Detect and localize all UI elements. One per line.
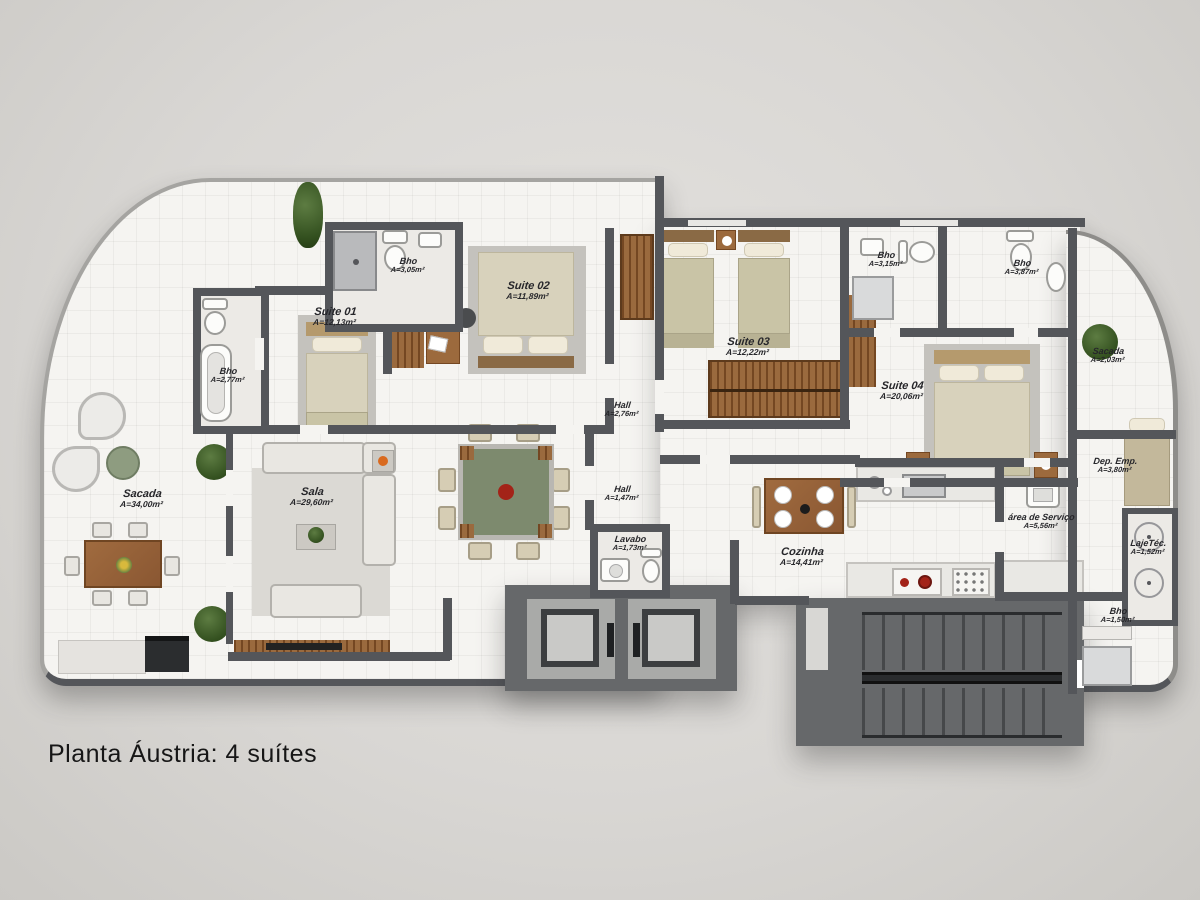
pillow <box>984 365 1024 381</box>
stairwell-block <box>796 598 1084 746</box>
room-area: A=14,41m² <box>751 558 852 568</box>
plant <box>308 527 324 543</box>
main-dining-table <box>458 444 554 540</box>
pillow <box>312 337 362 352</box>
suite03-wardrobe-left <box>620 234 654 320</box>
blanket <box>662 258 714 334</box>
room-area: A=1,73m² <box>593 544 666 552</box>
room-label-lavabo: Lavabo A=1,73m² <box>593 534 667 552</box>
toilet-bowl <box>204 311 226 335</box>
door-opening <box>874 328 900 337</box>
pillow <box>744 243 784 257</box>
blanket-fold <box>306 412 368 426</box>
plan-title: Planta Áustria: 4 suítes <box>48 740 468 769</box>
plate <box>816 486 834 504</box>
room-label-laje-tec: LajeTéc. A=1,52m² <box>1117 538 1179 556</box>
room-label-suite03: Suite 03 A=12,22m² <box>697 336 799 358</box>
room-area: A=12,13m² <box>284 318 385 328</box>
room-label-sacada-left: Sacada A=34,00m² <box>91 488 193 510</box>
table-centerpiece <box>498 484 514 500</box>
room-area: A=1,50m² <box>1081 616 1154 624</box>
wall <box>995 592 1080 601</box>
suite03-bed <box>738 230 790 348</box>
pillow <box>939 365 979 381</box>
table-corner <box>538 446 552 460</box>
wall <box>605 228 614 364</box>
lamp <box>722 236 732 246</box>
room-area: A=11,89m² <box>477 292 578 302</box>
tv <box>266 643 342 650</box>
shower <box>852 276 894 320</box>
plate <box>816 510 834 528</box>
kitchen-table <box>764 478 844 534</box>
suite03-bed <box>662 230 714 348</box>
bathroom-scale <box>418 232 442 248</box>
elevator-shaft <box>628 599 716 679</box>
kitchen-bench <box>752 486 761 528</box>
floor-plan-image: Sacada A=34,00m² Bho A=2,77m² Suite 01 A… <box>0 0 1200 900</box>
wall <box>226 434 233 644</box>
room-area: A=2,76m² <box>581 410 662 418</box>
room-area: A=3,80m² <box>1075 466 1154 474</box>
decor-bowl <box>378 456 388 466</box>
wall <box>735 596 809 605</box>
room-label-dep-emp: Dep. Emp. A=3,80m² <box>1075 456 1155 474</box>
wall <box>228 652 450 661</box>
room-label-sacada-right: Sacada A=2,03m² <box>1067 346 1149 364</box>
room-label-bho-suite01-top: Bho A=3,05m² <box>367 256 449 274</box>
pillow <box>528 336 568 354</box>
room-label-bho-suite01-left: Bho A=2,77m² <box>187 366 269 384</box>
barbecue-grill <box>145 636 189 672</box>
room-area: A=2,77m² <box>187 376 268 384</box>
dining-chair <box>438 506 456 530</box>
window-opening <box>226 556 233 592</box>
room-label-bho-servico: Bho A=1,50m² <box>1081 606 1155 624</box>
wall <box>938 222 947 334</box>
plate <box>774 486 792 504</box>
sofa <box>362 474 396 566</box>
side-table <box>372 450 394 472</box>
room-label-hall-lower: Hall A=1,47m² <box>581 484 663 502</box>
toilet <box>202 298 228 310</box>
pan <box>882 486 892 496</box>
wall <box>443 598 452 660</box>
dining-chair <box>92 590 112 606</box>
kitchen-counter-bottom <box>846 562 996 598</box>
room-area: A=29,60m² <box>261 498 362 508</box>
plate <box>774 510 792 528</box>
burner <box>900 578 909 587</box>
headboard <box>478 356 574 368</box>
ac-fan-icon <box>1134 568 1164 598</box>
dining-chair <box>552 468 570 492</box>
dining-chair <box>64 556 80 576</box>
door-opening <box>884 478 910 487</box>
room-label-bho-suite03: Bho A=3,15m² <box>845 250 927 268</box>
shower <box>1082 646 1132 686</box>
wall <box>840 300 849 428</box>
plant <box>293 182 323 248</box>
room-label-area-servico: área de Serviço A=5,56m² <box>1001 512 1081 530</box>
plant <box>194 606 230 642</box>
table-centerpiece <box>116 557 132 573</box>
window <box>688 220 746 226</box>
dining-chair <box>468 542 492 560</box>
lounge-chair <box>52 446 100 492</box>
dining-chair <box>438 468 456 492</box>
room-area: A=3,87m² <box>981 268 1062 276</box>
sofa <box>262 442 366 474</box>
door-opening <box>700 455 730 464</box>
room-label-suite01: Suite 01 A=12,13m² <box>284 306 386 328</box>
drain <box>353 259 359 265</box>
wall <box>585 434 594 466</box>
bho-servico-counter <box>1082 626 1132 640</box>
table-center <box>800 504 810 514</box>
dining-chair <box>552 506 570 530</box>
wall <box>840 478 1078 487</box>
balcony-dining-table <box>84 540 162 588</box>
wall <box>660 420 850 429</box>
window-opening <box>226 470 233 506</box>
tank-basin <box>1033 488 1053 502</box>
room-label-suite02: Suite 02 A=11,89m² <box>477 280 579 302</box>
room-area: A=12,22m² <box>697 348 798 358</box>
elevator-shaft <box>527 599 615 679</box>
dining-chair <box>516 542 540 560</box>
elevator-car <box>541 609 599 667</box>
toilet <box>382 230 408 244</box>
room-area: A=3,15m² <box>845 260 926 268</box>
room-area: A=2,03m² <box>1067 356 1148 364</box>
room-label-hall-upper: Hall A=2,76m² <box>581 400 663 418</box>
table-corner <box>460 524 474 538</box>
wall <box>730 540 739 604</box>
room-area: A=20,06m² <box>851 392 952 402</box>
suite01-bed <box>306 322 368 426</box>
suite02-bed <box>478 252 574 368</box>
window <box>900 220 958 226</box>
blanket <box>738 258 790 334</box>
dining-chair <box>128 590 148 606</box>
door-opening <box>1024 458 1050 467</box>
table-corner <box>538 524 552 538</box>
door-opening <box>556 425 584 434</box>
toilet-bowl <box>642 559 660 583</box>
room-area: A=3,05m² <box>367 266 448 274</box>
toilet <box>1006 230 1034 242</box>
dining-chair <box>164 556 180 576</box>
stair-flight-up <box>862 612 1062 670</box>
wardrobe-divider <box>710 389 840 392</box>
stair-landing-rail <box>862 672 1062 684</box>
door-opening <box>300 425 328 434</box>
round-side-table <box>106 446 140 480</box>
papers <box>428 335 449 352</box>
table-corner <box>460 446 474 460</box>
blanket <box>306 353 368 413</box>
wall <box>660 455 860 464</box>
stove <box>892 568 942 596</box>
basin <box>609 564 623 578</box>
drying-rack <box>952 568 990 596</box>
kitchen-bench <box>847 486 856 528</box>
suite03-wardrobe-big <box>708 360 842 418</box>
pillow <box>483 336 523 354</box>
elevator-rail-icon <box>607 623 614 657</box>
sofa <box>270 584 362 618</box>
lounge-chair <box>78 392 126 440</box>
sink <box>600 558 630 582</box>
burner <box>918 575 932 589</box>
room-label-bho-suite04: Bho A=3,87m² <box>981 258 1063 276</box>
wall <box>1076 430 1176 439</box>
elevator-car <box>642 609 700 667</box>
pillow <box>668 243 708 257</box>
dining-chair <box>92 522 112 538</box>
doormat <box>58 640 146 674</box>
room-area: A=5,56m² <box>1001 522 1080 530</box>
room-label-suite04: Suite 04 A=20,06m² <box>851 380 953 402</box>
door-opening <box>1014 328 1038 337</box>
room-label-sala: Sala A=29,60m² <box>261 486 363 508</box>
headboard <box>934 350 1030 364</box>
elevator-rail-icon <box>633 623 640 657</box>
room-area: A=34,00m² <box>91 500 192 510</box>
stair-flight-down <box>862 688 1062 738</box>
elevator-block <box>505 585 737 691</box>
headboard <box>662 230 714 242</box>
dining-chair <box>128 522 148 538</box>
room-area: A=1,47m² <box>581 494 662 502</box>
room-label-cozinha: Cozinha A=14,41m² <box>751 546 853 568</box>
stair-door <box>806 608 828 670</box>
nightstand <box>716 230 736 250</box>
headboard <box>738 230 790 242</box>
room-area: A=1,52m² <box>1117 548 1178 556</box>
